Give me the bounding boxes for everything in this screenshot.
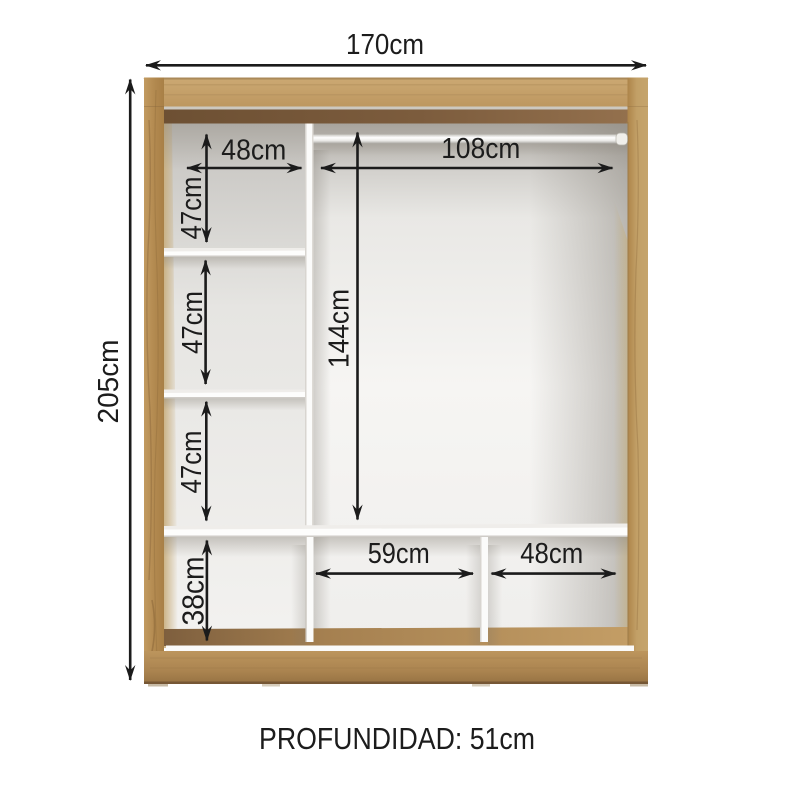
svg-text:38cm: 38cm [176,557,211,626]
svg-text:108cm: 108cm [441,133,520,165]
svg-text:48cm: 48cm [221,135,286,167]
svg-text:170cm: 170cm [346,29,424,61]
svg-text:59cm: 59cm [368,538,430,570]
svg-text:PROFUNDIDAD: 51cm: PROFUNDIDAD: 51cm [259,721,535,756]
svg-text:144cm: 144cm [324,289,356,368]
svg-text:47cm: 47cm [176,177,208,240]
svg-text:47cm: 47cm [177,291,209,354]
svg-text:205cm: 205cm [93,340,125,424]
svg-text:47cm: 47cm [176,431,208,494]
svg-text:48cm: 48cm [520,538,583,570]
